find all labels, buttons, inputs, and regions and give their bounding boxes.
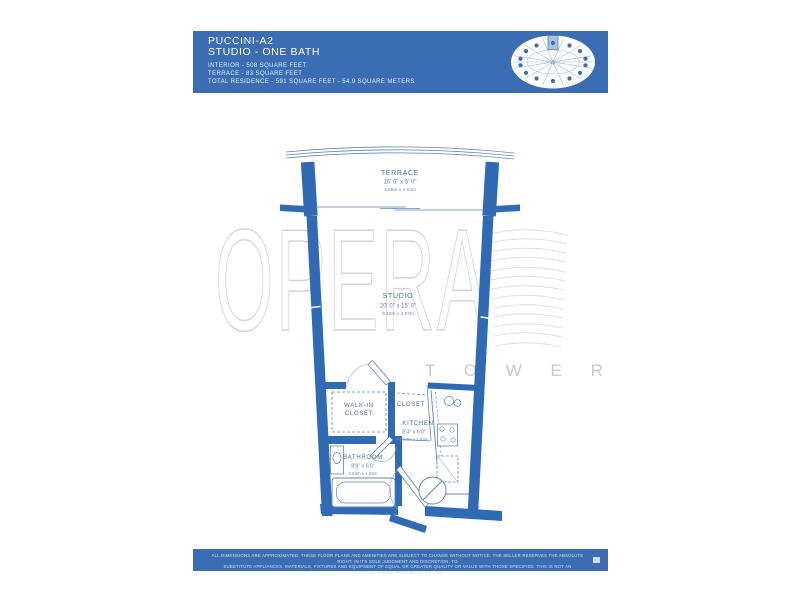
wall-stub-left — [280, 205, 306, 213]
wall-stub-right — [494, 205, 520, 213]
terrace-dims-imperial: 16' 6" x 5' 0" — [384, 180, 417, 186]
unit-type: STUDIO - ONE BATH — [208, 47, 320, 58]
entry-foot-wall — [425, 506, 502, 521]
walk-in-closet-label-line1: WALK-IN — [344, 403, 374, 409]
sliding-door-track — [316, 207, 484, 210]
bathroom-label: BATHROOM — [343, 455, 383, 461]
bathroom-vanity — [331, 446, 344, 474]
entry-diagonal-wall — [389, 514, 427, 533]
bathtub — [332, 478, 395, 507]
walls — [280, 162, 520, 533]
kitchen-dims-metric: 2.54m x 1.83m — [399, 437, 428, 442]
stat-terrace: TERRACE - 83 SQUARE FEET — [208, 70, 415, 78]
footer-band: ALL DIMENSIONS ARE APPROXIMATED. THESE F… — [193, 549, 608, 571]
hall-door-leaf — [368, 361, 391, 386]
disclaimer-line1: ALL DIMENSIONS ARE APPROXIMATED. THESE F… — [211, 553, 584, 564]
closet-label: CLOSET — [397, 402, 425, 408]
equal-housing-icon — [593, 557, 600, 563]
floorplan-page: PUCCINI-A2 STUDIO - ONE BATH INTERIOR - … — [0, 0, 800, 600]
kitchen-sink — [444, 396, 461, 406]
header-band: PUCCINI-A2 STUDIO - ONE BATH INTERIOR - … — [193, 31, 608, 93]
round-column — [419, 477, 446, 504]
unit-stats: INTERIOR - 508 SQUARE FEET TERRACE - 83 … — [208, 62, 415, 86]
stat-interior: INTERIOR - 508 SQUARE FEET — [208, 62, 415, 70]
hall-wall-stub — [324, 382, 346, 389]
closet-divider-wall — [388, 382, 395, 439]
kitchen-label: KITCHEN — [402, 421, 433, 427]
side-wall-left — [307, 216, 333, 516]
stat-total: TOTAL RESIDENCE - 591 SQUARE FEET - 54.9… — [208, 78, 415, 86]
terrace-railing — [286, 147, 514, 159]
floorplan-drawing: TERRACE 16' 6" x 5' 0" 4.88m x 1.52m STU… — [280, 138, 520, 548]
kitchen-top-wall — [428, 383, 479, 392]
building-keyplate-icon: 4 — [508, 33, 598, 91]
studio-label: STUDIO — [383, 293, 414, 300]
kitchen-stove — [438, 424, 458, 446]
terrace-label: TERRACE — [381, 170, 419, 177]
side-wall-right — [468, 216, 494, 516]
bathroom-dims-metric: 2.64m x 1.83m — [348, 471, 377, 476]
terrace-dims-metric: 4.88m x 1.52m — [384, 187, 416, 193]
kitchen-dims-imperial: 8'4" x 6'0" — [402, 430, 426, 436]
studio-dims-metric: 6.10m x 4.57m — [382, 311, 414, 317]
walk-in-closet-label-line2: CLOSET — [345, 411, 373, 417]
disclaimer-text: ALL DIMENSIONS ARE APPROXIMATED. THESE F… — [193, 549, 608, 575]
hall-door-arc — [347, 364, 368, 387]
studio-dims-imperial: 20' 0" x 15' 0" — [380, 304, 416, 310]
disclaimer-line2: SUBSTITUTE APPLIANCES, MATERIALS, FIXTUR… — [211, 564, 584, 575]
keyplate-floor-number: 4 — [551, 59, 556, 68]
bathroom-dims-imperial: 8'8" x 6'0" — [351, 464, 375, 470]
bathroom-top-wall — [327, 436, 376, 444]
kitchen-fridge — [437, 456, 458, 482]
